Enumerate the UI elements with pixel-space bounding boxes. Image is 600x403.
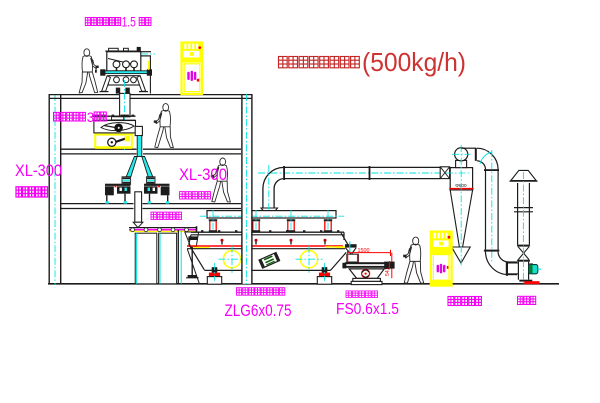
svg-text:(500kg/h): (500kg/h) [362, 47, 466, 77]
svg-text:3: 3 [87, 109, 95, 125]
svg-text:ZLG6x0.75: ZLG6x0.75 [225, 301, 292, 320]
svg-text:XL-300: XL-300 [15, 161, 62, 180]
svg-text:1.5: 1.5 [122, 13, 136, 29]
svg-text:XL-300: XL-300 [179, 165, 227, 184]
svg-text:1500: 1500 [358, 248, 370, 254]
svg-text:FS0.6x1.5: FS0.6x1.5 [336, 301, 399, 318]
